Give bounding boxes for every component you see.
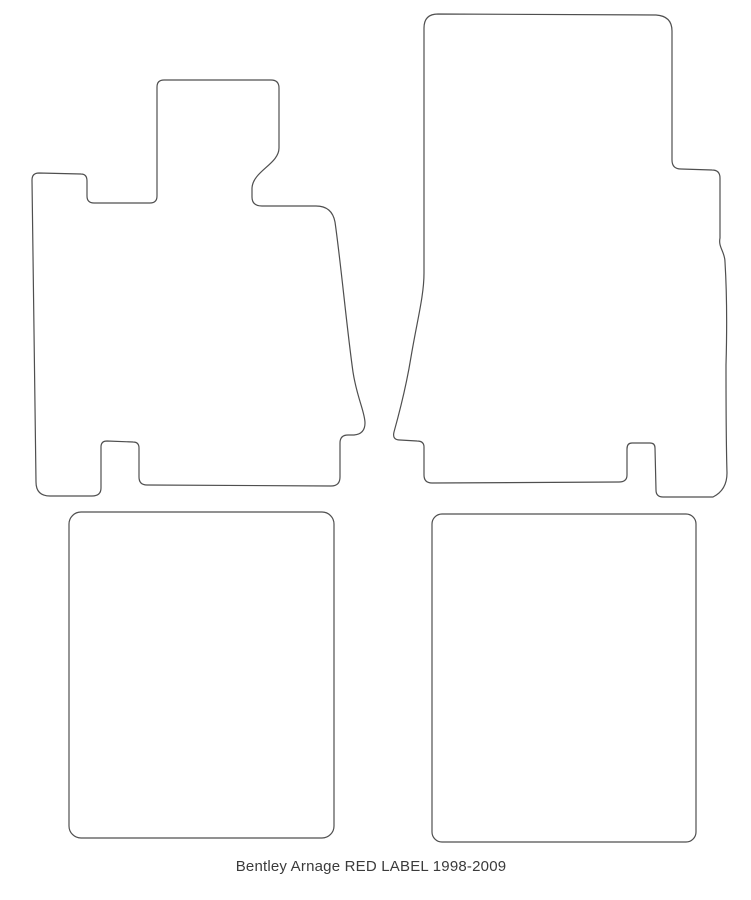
mat-template-diagram: Bentley Arnage RED LABEL 1998-2009 <box>0 0 751 900</box>
mat-shapes-canvas <box>0 0 751 852</box>
rear-right-mat-outline <box>432 514 696 842</box>
front-left-mat-outline <box>32 80 365 496</box>
caption-text: Bentley Arnage RED LABEL 1998-2009 <box>0 858 742 875</box>
rear-left-mat-outline <box>69 512 334 838</box>
front-right-mat-outline <box>394 14 727 497</box>
